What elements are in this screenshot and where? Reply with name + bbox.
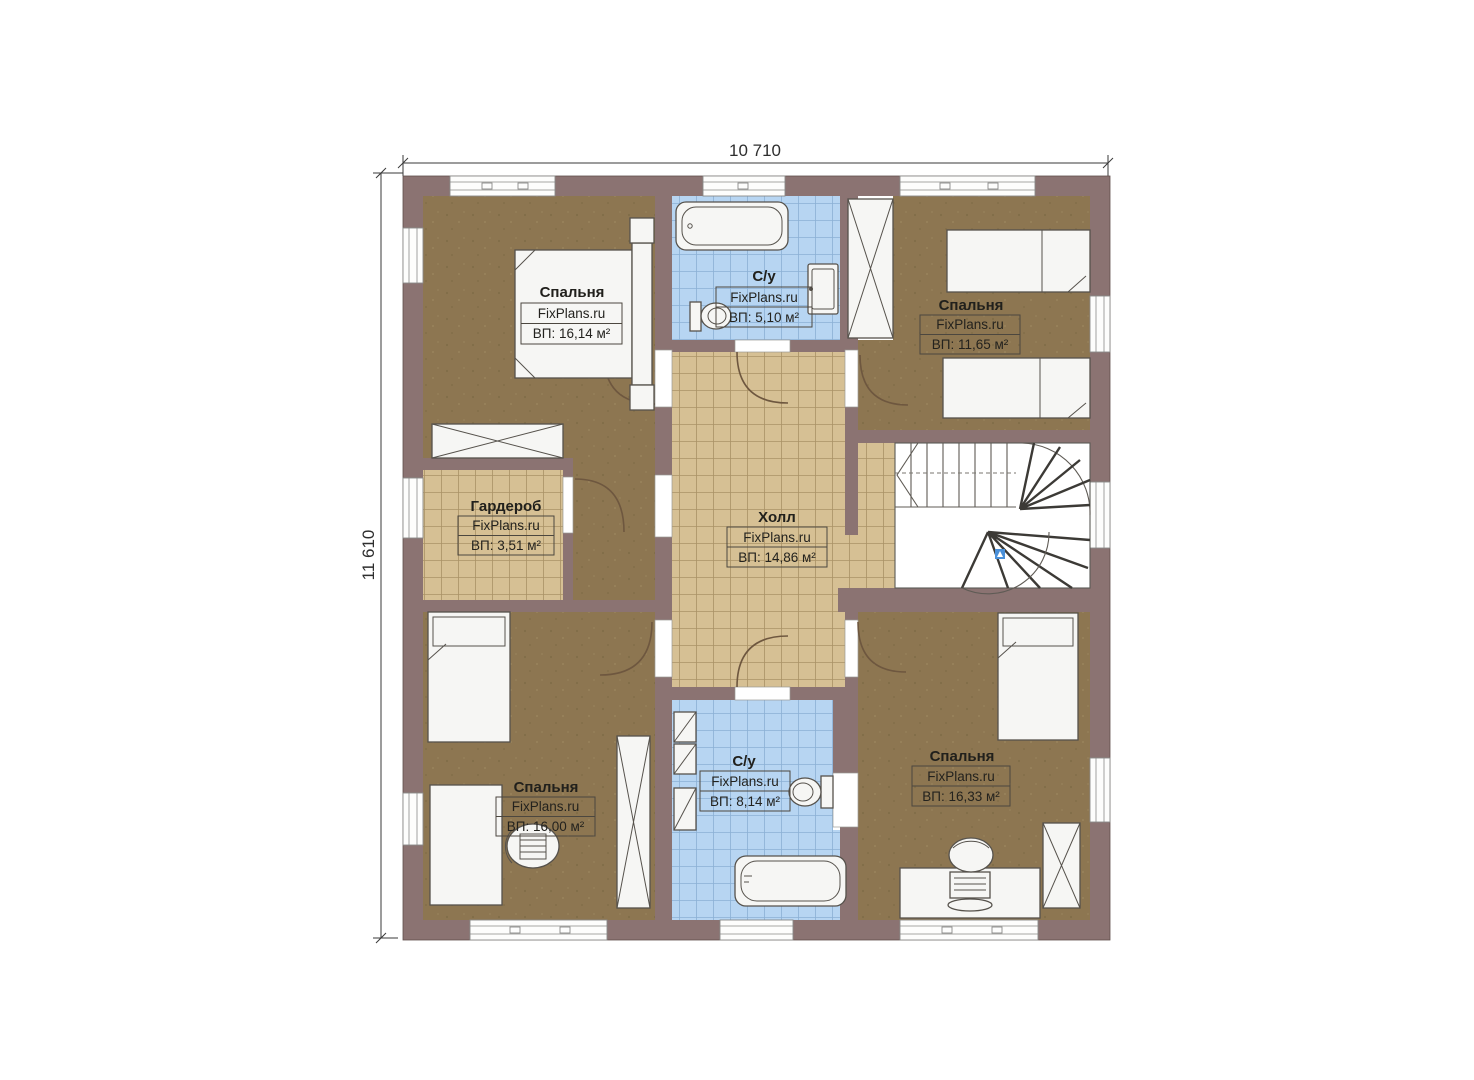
dimension-top: 10 710: [398, 141, 1113, 176]
bathtub: [676, 202, 788, 250]
wardrobe-cabinet: [432, 424, 563, 458]
toilet: [789, 776, 833, 808]
room-area: ВП: 16,00 м²: [507, 819, 585, 834]
wardrobe-cabinet: [848, 199, 893, 338]
single-bed: [998, 613, 1078, 740]
room-name: Спальня: [930, 748, 995, 765]
window: [470, 920, 607, 940]
room-name: Спальня: [514, 779, 579, 796]
room-label-wardrobe: Гардероб FixPlans.ru ВП: 3,51 м²: [458, 498, 554, 555]
room-area: ВП: 3,51 м²: [471, 538, 542, 553]
room-name: С/у: [752, 268, 776, 285]
room-area: ВП: 11,65 м²: [932, 337, 1009, 352]
single-bed: [943, 358, 1090, 418]
wall-niche: [833, 773, 858, 827]
window: [1090, 296, 1110, 352]
room-name: Спальня: [939, 297, 1004, 314]
shelf-unit: [674, 788, 696, 830]
room-brand: FixPlans.ru: [472, 518, 540, 533]
shelf-unit: [674, 744, 696, 774]
room-brand: FixPlans.ru: [538, 306, 606, 321]
room-brand: FixPlans.ru: [927, 769, 995, 784]
bed-headboard: [632, 243, 652, 385]
window: [1090, 758, 1110, 822]
room-name: С/у: [732, 753, 756, 770]
nightstand: [630, 218, 654, 243]
room-brand: FixPlans.ru: [936, 317, 1004, 332]
room-name: Спальня: [540, 284, 605, 301]
window: [450, 176, 555, 196]
room-brand: FixPlans.ru: [743, 530, 811, 545]
room-name: Гардероб: [471, 498, 542, 515]
room-brand: FixPlans.ru: [730, 290, 798, 305]
office-chair: [949, 838, 993, 872]
window: [900, 176, 1035, 196]
room-area: ВП: 14,86 м²: [738, 550, 816, 565]
room-brand: FixPlans.ru: [711, 774, 779, 789]
room-area: ВП: 8,14 м²: [710, 794, 781, 809]
single-bed: [428, 612, 510, 742]
nightstand: [630, 385, 654, 410]
shelf-unit: [674, 712, 696, 742]
wardrobe-cabinet: [1043, 823, 1080, 908]
bathtub: [735, 856, 846, 906]
printer: [948, 872, 992, 911]
window: [403, 478, 423, 538]
room-area: ВП: 16,33 м²: [922, 789, 1000, 804]
window: [1090, 482, 1110, 548]
room-brand: FixPlans.ru: [512, 799, 580, 814]
desk: [430, 785, 502, 905]
staircase: [895, 443, 1090, 594]
single-bed: [947, 230, 1090, 292]
window: [403, 793, 423, 845]
room-area: ВП: 16,14 м²: [533, 326, 611, 341]
wardrobe-cabinet: [617, 736, 650, 908]
window: [403, 228, 423, 283]
dimension-left: 11 610: [359, 168, 403, 943]
floor-plan-canvas: 10 710 11 610: [0, 0, 1474, 1080]
window: [720, 920, 793, 940]
window: [900, 920, 1038, 940]
room-area: ВП: 5,10 м²: [729, 310, 800, 325]
dimension-width-label: 10 710: [729, 141, 781, 160]
window: [703, 176, 785, 196]
room-name: Холл: [758, 509, 796, 526]
dimension-height-label: 11 610: [359, 530, 378, 581]
